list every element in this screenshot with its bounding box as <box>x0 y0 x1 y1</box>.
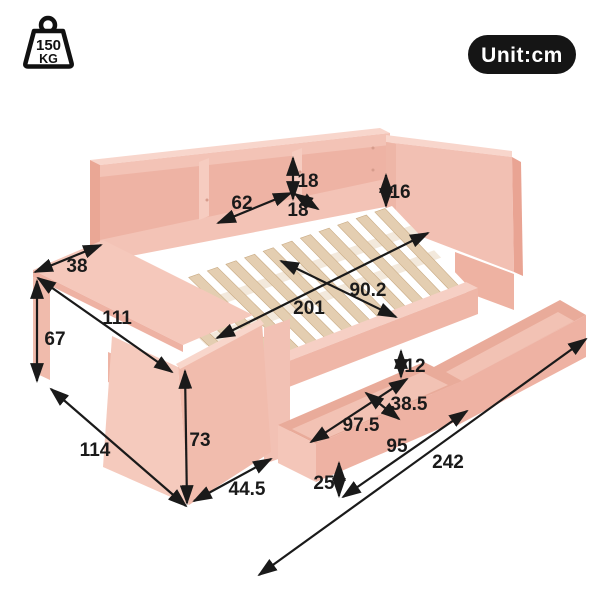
weight-capacity-badge: 150 KG <box>25 18 71 67</box>
dimension-value: 44.5 <box>229 479 266 500</box>
dimension-value: 111 <box>102 308 132 329</box>
side-panel-front-face <box>103 336 189 505</box>
unit-badge: Unit:cm <box>468 35 576 74</box>
dimension-value: 95 <box>386 436 408 457</box>
screw-hole <box>206 199 209 202</box>
dimension-value: 62 <box>231 193 252 214</box>
dimension-value: 73 <box>189 430 210 451</box>
shelf-divider <box>199 158 209 220</box>
unit-badge-label: Unit:cm <box>481 44 563 67</box>
bed-diagram-canvas: 18621816381116720190.21238.597.595252421… <box>0 0 600 600</box>
dimension-value: 18 <box>297 171 318 192</box>
dimension-value: 90.2 <box>350 280 387 301</box>
dimension-value: 38 <box>66 256 87 277</box>
dimension-value: 16 <box>389 182 410 203</box>
dimension-value: 38.5 <box>391 394 428 415</box>
dimension-12-9: 12 <box>401 351 426 377</box>
dimension-value: 25 <box>313 473 335 494</box>
side-panel-right-face <box>178 322 271 505</box>
dimension-value: 97.5 <box>343 415 380 436</box>
weight-unit: KG <box>39 52 58 66</box>
dimension-value: 12 <box>404 356 425 377</box>
dimension-value: 18 <box>287 200 308 221</box>
dimension-value: 201 <box>293 298 325 319</box>
screw-hole <box>372 169 375 172</box>
screw-hole <box>372 147 375 150</box>
dimension-value: 114 <box>80 440 111 461</box>
dimension-value: 67 <box>44 329 65 350</box>
product-dimension-diagram: 18621816381116720190.21238.597.595252421… <box>0 0 600 600</box>
dimension-value: 242 <box>432 452 464 473</box>
